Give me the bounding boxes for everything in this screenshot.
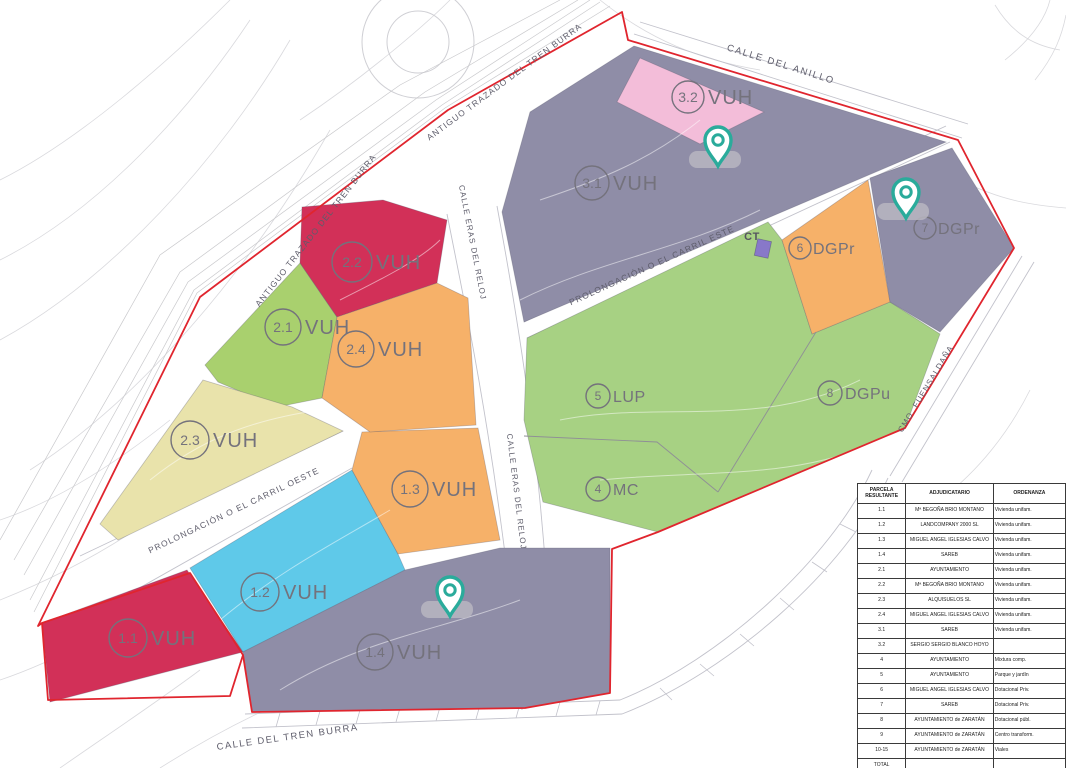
svg-text:1.2: 1.2 xyxy=(250,584,270,600)
svg-text:MC: MC xyxy=(613,482,639,499)
svg-text:VUH: VUH xyxy=(613,173,658,195)
svg-text:VUH: VUH xyxy=(378,339,423,361)
table-header-row: PARCELA RESULTANTE ADJUDICATARIO ORDENAN… xyxy=(858,484,1066,504)
svg-text:5: 5 xyxy=(595,389,602,403)
svg-text:VUH: VUH xyxy=(432,479,477,501)
svg-text:8: 8 xyxy=(827,386,834,400)
svg-text:VUH: VUH xyxy=(397,642,442,664)
svg-text:2.3: 2.3 xyxy=(180,432,200,448)
svg-text:DGPr: DGPr xyxy=(813,241,855,258)
street-label-eras-del-reloj-lower: CALLE ERAS DEL RELOJ xyxy=(505,433,528,550)
svg-text:3.1: 3.1 xyxy=(582,175,602,191)
parcel-table-body: 1.1Mª BEGOÑA BRIO MONTANOVivienda unifam… xyxy=(858,504,1066,768)
table-row: 4AYUNTAMIENTOMixtura comp. xyxy=(858,654,1066,669)
table-row: 3.1SAREBVivienda unifam. xyxy=(858,624,1066,639)
svg-text:VUH: VUH xyxy=(708,87,753,109)
table-row: 7SAREBDotacional Priv. xyxy=(858,699,1066,714)
svg-text:VUH: VUH xyxy=(151,628,196,650)
table-row: 1.1Mª BEGOÑA BRIO MONTANOVivienda unifam… xyxy=(858,504,1066,519)
svg-text:VUH: VUH xyxy=(283,582,328,604)
table-row: 5AYUNTAMIENTOParque y jardín xyxy=(858,669,1066,684)
svg-text:6: 6 xyxy=(797,241,804,255)
svg-text:DGPu: DGPu xyxy=(845,386,891,403)
transformer-label: CT xyxy=(744,231,760,243)
table-row: 1.3MIGUEL ANGEL IGLESIAS CALVOVivienda u… xyxy=(858,534,1066,549)
table-row: 6MIGUEL ANGEL IGLESIAS CALVODotacional P… xyxy=(858,684,1066,699)
col-header-ordenanza: ORDENANZA xyxy=(993,484,1065,504)
table-row: 8AYUNTAMIENTO de ZARATÁNDotacional públ. xyxy=(858,714,1066,729)
table-row: 1.2LANDCOMPANY 2000 SLVivienda unifam. xyxy=(858,519,1066,534)
table-row: 1.4SAREBVivienda unifam. xyxy=(858,549,1066,564)
svg-text:LUP: LUP xyxy=(613,389,646,406)
table-row: 2.2Mª BEGOÑA BRIO MONTANOVivienda unifam… xyxy=(858,579,1066,594)
col-header-adjudicatario: ADJUDICATARIO xyxy=(906,484,994,504)
svg-text:VUH: VUH xyxy=(213,430,258,452)
col-header-parcela: PARCELA RESULTANTE xyxy=(858,484,906,504)
table-row: 3.2SERGIO SERGIO BLANCO HOYO xyxy=(858,639,1066,654)
table-row: 9AYUNTAMIENTO de ZARATÁNCentro transform… xyxy=(858,729,1066,744)
svg-text:2.1: 2.1 xyxy=(273,319,293,335)
table-row: 10-15AYUNTAMIENTO de ZARATÁNViales xyxy=(858,744,1066,759)
zoning-map-page: ANTIGUO TRAZADO DEL TREN BURRA ANTIGUO T… xyxy=(0,0,1066,768)
svg-text:4: 4 xyxy=(595,482,602,496)
svg-text:DGPr: DGPr xyxy=(938,221,980,238)
parcel-table: PARCELA RESULTANTE ADJUDICATARIO ORDENAN… xyxy=(857,483,1066,768)
svg-text:1.1: 1.1 xyxy=(118,630,138,646)
table-row: 2.3ALQUISUELOS SLVivienda unifam. xyxy=(858,594,1066,609)
svg-text:3.2: 3.2 xyxy=(678,89,698,105)
table-row: 2.4MIGUEL ANGEL IGLESIAS CALVOVivienda u… xyxy=(858,609,1066,624)
svg-text:2.2: 2.2 xyxy=(342,254,362,270)
svg-text:VUH: VUH xyxy=(376,252,421,274)
table-row: TOTAL xyxy=(858,759,1066,768)
svg-text:7: 7 xyxy=(922,221,929,235)
svg-text:1.3: 1.3 xyxy=(400,481,420,497)
svg-text:2.4: 2.4 xyxy=(346,341,366,357)
svg-text:1.4: 1.4 xyxy=(365,644,385,660)
street-label-eras-del-reloj-upper: CALLE ERAS DEL RELOJ xyxy=(457,184,488,300)
table-row: 2.1AYUNTAMIENTOVivienda unifam. xyxy=(858,564,1066,579)
